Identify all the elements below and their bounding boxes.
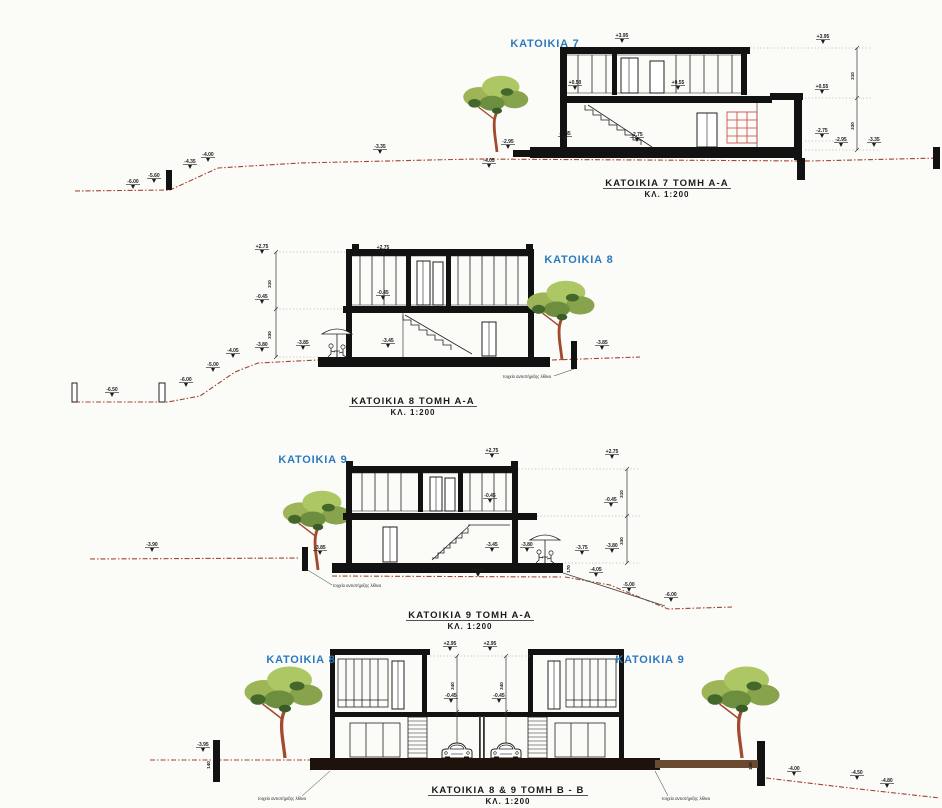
svg-text:-5.00: -5.00 xyxy=(207,362,219,368)
elevation-markers: -6.00-5.60-4.35-4.00-3.35-2.95-4.05+3.95… xyxy=(126,33,881,189)
elevation-marker: +0.55 xyxy=(671,80,685,90)
note-retaining-wall: τοιχείο αντιστήριξης λίθινο xyxy=(503,374,552,379)
svg-text:+3.95: +3.95 xyxy=(616,33,629,39)
elevation-marker: -2.95 xyxy=(834,137,848,147)
section-title: ΚΑΤΟΙΚΙΑ 8 ΤΟΜΗ Α-Α xyxy=(351,396,474,407)
svg-text:-5.00: -5.00 xyxy=(623,582,635,588)
dimension-text: 340 xyxy=(450,682,455,690)
tree xyxy=(463,76,528,152)
elevation-marker: +2.75 xyxy=(255,244,269,254)
elevation-marker: -3.45 xyxy=(485,542,499,552)
tree xyxy=(702,667,780,759)
dimension-text: 330 xyxy=(267,331,272,339)
carport xyxy=(430,654,530,759)
elevation-marker: -5.60 xyxy=(147,173,161,183)
svg-text:-0.45: -0.45 xyxy=(484,493,496,499)
dimension-text: 340 xyxy=(499,682,504,690)
svg-text:-4.05: -4.05 xyxy=(590,567,602,573)
section-katoikia-8: τοιχείο αντιστήριξης λίθινο -6.50-6.00-5… xyxy=(72,244,640,417)
elevation-marker: +3.95 xyxy=(816,34,830,44)
elevation-marker: -3.95 xyxy=(196,742,210,752)
scale-label: ΚΛ. 1:200 xyxy=(390,408,435,417)
elevation-marker: -4.05 xyxy=(226,348,240,358)
elevation-marker: -3.90 xyxy=(145,542,159,552)
scale-label: ΚΛ. 1:200 xyxy=(644,190,689,199)
ground-slab xyxy=(318,357,550,367)
svg-text:+0.55: +0.55 xyxy=(672,80,685,86)
svg-text:-3.90: -3.90 xyxy=(146,542,158,548)
elevation-marker: +3.95 xyxy=(615,33,629,43)
svg-text:-3.95: -3.95 xyxy=(197,742,209,748)
svg-text:+3.95: +3.95 xyxy=(817,34,830,40)
dimension-column xyxy=(274,250,346,359)
svg-text:-4.00: -4.00 xyxy=(202,152,214,158)
house-label-left: ΚΑΤΟΙΚΙΑ 8 xyxy=(266,654,335,666)
elevation-marker: -0.45 xyxy=(604,497,618,507)
elevation-marker: -4.00 xyxy=(471,567,485,577)
sections-drawing: -6.00-5.60-4.35-4.00-3.35-2.95-4.05+3.95… xyxy=(0,0,942,808)
section-katoikia-9: τοιχείο αντιστήριξης λίθινο -3.90-3.85+2… xyxy=(90,448,732,631)
retaining-wall xyxy=(571,341,577,369)
elevation-marker: -6.00 xyxy=(664,592,678,602)
svg-text:-6.00: -6.00 xyxy=(180,377,192,383)
svg-text:-2.95: -2.95 xyxy=(835,137,847,143)
svg-text:-3.85: -3.85 xyxy=(596,340,608,346)
elevation-marker: -3.80 xyxy=(520,542,534,552)
svg-text:-4.00: -4.00 xyxy=(472,567,484,573)
elevation-marker: -4.80 xyxy=(880,778,894,788)
svg-text:-4.05: -4.05 xyxy=(227,348,239,354)
dimension-text: 140 xyxy=(748,762,753,770)
svg-text:-3.85: -3.85 xyxy=(314,545,326,551)
elevation-marker: -0.45 xyxy=(376,290,390,300)
house-label-right: ΚΑΤΟΙΚΙΑ 9 xyxy=(615,654,684,666)
scale-label: ΚΛ. 1:200 xyxy=(485,797,530,806)
section-title: ΚΑΤΟΙΚΙΑ 7 ΤΟΜΗ Α-Α xyxy=(605,178,728,189)
svg-text:-3.35: -3.35 xyxy=(868,137,880,143)
svg-text:-0.45: -0.45 xyxy=(256,294,268,300)
elevation-marker: -4.05 xyxy=(589,567,603,577)
retaining-post xyxy=(933,147,940,169)
red-hatch-window xyxy=(727,112,757,143)
svg-text:-3.75: -3.75 xyxy=(576,545,588,551)
dimension-text: 310 xyxy=(619,490,624,498)
svg-text:-3.45: -3.45 xyxy=(486,542,498,548)
dimension-text: 310 xyxy=(850,72,855,80)
building-section xyxy=(332,461,563,573)
retaining-post xyxy=(159,383,165,402)
window xyxy=(445,478,455,511)
elevation-marker: -0.45 xyxy=(444,693,458,703)
elevation-marker: -2.95 xyxy=(501,139,515,149)
note-retaining-wall: τοιχείο αντιστήριξης λίθινο xyxy=(258,796,307,801)
elevation-marker: +2.75 xyxy=(485,448,499,458)
elevation-marker: -6.00 xyxy=(126,179,140,189)
svg-text:-3.85: -3.85 xyxy=(297,340,309,346)
svg-text:+2.75: +2.75 xyxy=(377,245,390,251)
section-katoikia-8-9: τοιχείο αντιστήριξης λίθινο τοιχείο αντι… xyxy=(150,641,940,806)
terrain-line xyxy=(75,158,940,191)
svg-text:+0.50: +0.50 xyxy=(569,80,582,86)
ground-slab xyxy=(310,758,660,770)
svg-text:-6.50: -6.50 xyxy=(106,387,118,393)
elevation-marker: -2.75 xyxy=(815,128,829,138)
elevation-marker: -4.50 xyxy=(850,770,864,780)
elevation-marker: -3.35 xyxy=(373,144,387,154)
umbrella-table xyxy=(530,535,560,563)
carport-roof-slab xyxy=(330,712,623,717)
svg-text:-2.85: -2.85 xyxy=(559,131,571,137)
elevation-marker: +0.55 xyxy=(815,84,829,94)
retaining-wall xyxy=(213,740,220,782)
retaining-wall xyxy=(757,741,765,786)
dimension-text: 330 xyxy=(619,537,624,545)
building-section-left xyxy=(330,649,430,759)
elevation-marker: -3.45 xyxy=(381,338,395,348)
scale-label: ΚΛ. 1:200 xyxy=(447,622,492,631)
svg-text:+2.95: +2.95 xyxy=(444,641,457,647)
svg-text:+2.75: +2.75 xyxy=(486,448,499,454)
elevation-marker: -3.85 xyxy=(296,340,310,350)
window xyxy=(650,61,664,93)
dimension-text: 310 xyxy=(267,280,272,288)
dimension-text: 330 xyxy=(850,122,855,130)
elevation-marker: -6.00 xyxy=(179,377,193,387)
svg-text:-0.45: -0.45 xyxy=(493,693,505,699)
ground-strip xyxy=(655,760,758,768)
svg-text:-0.45: -0.45 xyxy=(445,693,457,699)
car xyxy=(442,743,472,759)
svg-text:-3.80: -3.80 xyxy=(256,342,268,348)
elevation-marker: +0.50 xyxy=(568,80,582,90)
svg-text:-5.60: -5.60 xyxy=(148,173,160,179)
svg-text:-4.80: -4.80 xyxy=(881,778,893,784)
staircase xyxy=(585,105,641,145)
svg-text:-0.45: -0.45 xyxy=(605,497,617,503)
svg-text:-4.05: -4.05 xyxy=(483,158,495,164)
slope-line xyxy=(563,573,665,606)
section-title: ΚΑΤΟΙΚΙΑ 9 ΤΟΜΗ Α-Α xyxy=(408,610,531,621)
stair-hatch xyxy=(528,717,547,758)
dimension-text: 140 xyxy=(206,761,211,769)
note-retaining-wall: τοιχείο αντιστήριξης λίθινο xyxy=(662,796,711,801)
window xyxy=(433,262,443,305)
elevation-marker: -3.35 xyxy=(867,137,881,147)
staircase xyxy=(403,315,451,350)
elevation-marker: -3.80 xyxy=(255,342,269,352)
svg-text:-6.00: -6.00 xyxy=(127,179,139,185)
tree xyxy=(527,281,595,360)
retaining-wall xyxy=(302,547,308,571)
dimension-labels: 310330 xyxy=(850,72,855,130)
elevation-marker: +2.95 xyxy=(483,641,497,651)
svg-text:-4.50: -4.50 xyxy=(851,770,863,776)
svg-text:+2.75: +2.75 xyxy=(606,449,619,455)
section-katoikia-7: -6.00-5.60-4.35-4.00-3.35-2.95-4.05+3.95… xyxy=(75,33,940,199)
elevation-marker: -4.00 xyxy=(201,152,215,162)
elevation-marker: -0.45 xyxy=(492,693,506,703)
dimension-text: 170 xyxy=(566,565,571,573)
retaining-post xyxy=(166,170,172,190)
house-label: ΚΑΤΟΙΚΙΑ 7 xyxy=(510,38,579,50)
ground-slab xyxy=(530,147,798,158)
staircase xyxy=(432,525,510,558)
svg-text:+2.95: +2.95 xyxy=(484,641,497,647)
svg-text:-0.45: -0.45 xyxy=(377,290,389,296)
elevation-marker: -0.45 xyxy=(255,294,269,304)
architectural-drawing-sheet: -6.00-5.60-4.35-4.00-3.35-2.95-4.05+3.95… xyxy=(0,0,942,808)
note-retaining-wall: τοιχείο αντιστήριξης λίθινο xyxy=(333,583,382,588)
elevation-marker: -4.00 xyxy=(787,766,801,776)
retaining-post xyxy=(72,383,77,402)
elevation-marker: -3.80 xyxy=(605,543,619,553)
svg-text:-2.95: -2.95 xyxy=(502,139,514,145)
elevation-marker: -3.85 xyxy=(595,340,609,350)
svg-text:-3.80: -3.80 xyxy=(606,543,618,549)
svg-text:-6.00: -6.00 xyxy=(665,592,677,598)
elevation-marker: -4.35 xyxy=(183,159,197,169)
section-title: ΚΑΤΟΙΚΙΑ 8 & 9 ΤΟΜΗ Β - Β xyxy=(431,785,584,796)
svg-text:-4.00: -4.00 xyxy=(788,766,800,772)
building-section-right xyxy=(528,649,624,759)
svg-text:-2.75: -2.75 xyxy=(631,132,643,138)
house-label: ΚΑΤΟΙΚΙΑ 8 xyxy=(544,254,613,266)
door xyxy=(621,58,638,93)
stair-hatch xyxy=(408,717,427,758)
elevation-marker: -6.50 xyxy=(105,387,119,397)
svg-text:-4.35: -4.35 xyxy=(184,159,196,165)
svg-text:-2.75: -2.75 xyxy=(816,128,828,134)
elevation-marker: +2.75 xyxy=(605,449,619,459)
elevation-marker: -0.45 xyxy=(483,493,497,503)
svg-text:-3.45: -3.45 xyxy=(382,338,394,344)
elevation-marker: -4.05 xyxy=(482,158,496,168)
elevation-marker: +2.95 xyxy=(443,641,457,651)
house-label: ΚΑΤΟΙΚΙΑ 9 xyxy=(278,454,347,466)
svg-text:-3.35: -3.35 xyxy=(374,144,386,150)
elevation-marker: -5.00 xyxy=(206,362,220,372)
svg-text:+2.75: +2.75 xyxy=(256,244,269,250)
door xyxy=(417,261,430,305)
ground-slab xyxy=(332,563,563,573)
svg-text:+0.55: +0.55 xyxy=(816,84,829,90)
car xyxy=(491,743,521,759)
building-section xyxy=(318,244,550,367)
dimension-labels: 310330 xyxy=(267,280,272,339)
svg-text:-3.80: -3.80 xyxy=(521,542,533,548)
elevation-marker: -3.75 xyxy=(575,545,589,555)
tree xyxy=(245,667,323,759)
